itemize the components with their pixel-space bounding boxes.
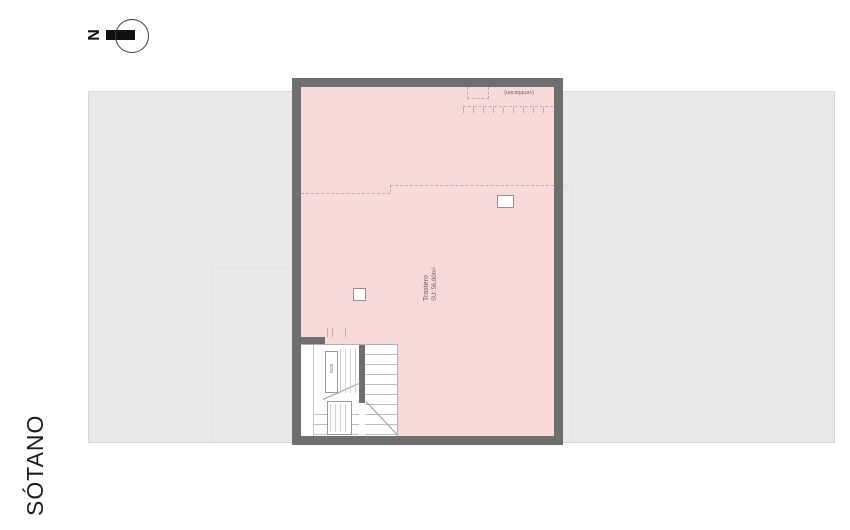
room-name: Trastero bbox=[423, 241, 432, 301]
stair-treads bbox=[365, 345, 398, 436]
floor-above-dashed-line bbox=[390, 185, 554, 186]
north-arrow-circle bbox=[115, 19, 149, 53]
room-area: SU: 56.80m² bbox=[432, 241, 440, 301]
skylight-label: (ventilación) bbox=[489, 89, 549, 95]
room-label: Trastero SU: 56.80m² bbox=[423, 241, 443, 301]
equipment-box bbox=[327, 401, 352, 435]
upper-floor-projection-right bbox=[563, 185, 573, 443]
north-arrow: N bbox=[85, 16, 165, 60]
floor-plan-canvas: SÓTANO N (ventilación) Trastero SU: 56.8… bbox=[0, 0, 850, 530]
skylight-notch-outline bbox=[467, 87, 489, 99]
upper-floor-projection-left bbox=[212, 268, 292, 443]
acs-label: ACS bbox=[329, 364, 334, 373]
acs-equipment-box: ACS bbox=[325, 351, 338, 393]
stair-enclosure: ACS bbox=[301, 344, 398, 436]
floor-above-dashed-line bbox=[301, 193, 390, 194]
annotation-mark bbox=[332, 328, 333, 337]
floor-title: SÓTANO bbox=[22, 386, 49, 516]
stair-mid-wall bbox=[359, 345, 365, 403]
annotation-mark bbox=[345, 328, 346, 337]
micro-annotation-text bbox=[340, 349, 358, 393]
structural-column bbox=[353, 288, 366, 301]
annotation-mark bbox=[327, 328, 328, 337]
micro-annotation-text bbox=[330, 404, 349, 432]
basement-outline: (ventilación) Trastero SU: 56.80m² ACS bbox=[292, 78, 563, 445]
skylight-grating-ticks bbox=[463, 107, 553, 113]
floor-above-dashed-step bbox=[390, 185, 391, 193]
north-label: N bbox=[86, 29, 104, 41]
structural-column bbox=[497, 195, 514, 208]
